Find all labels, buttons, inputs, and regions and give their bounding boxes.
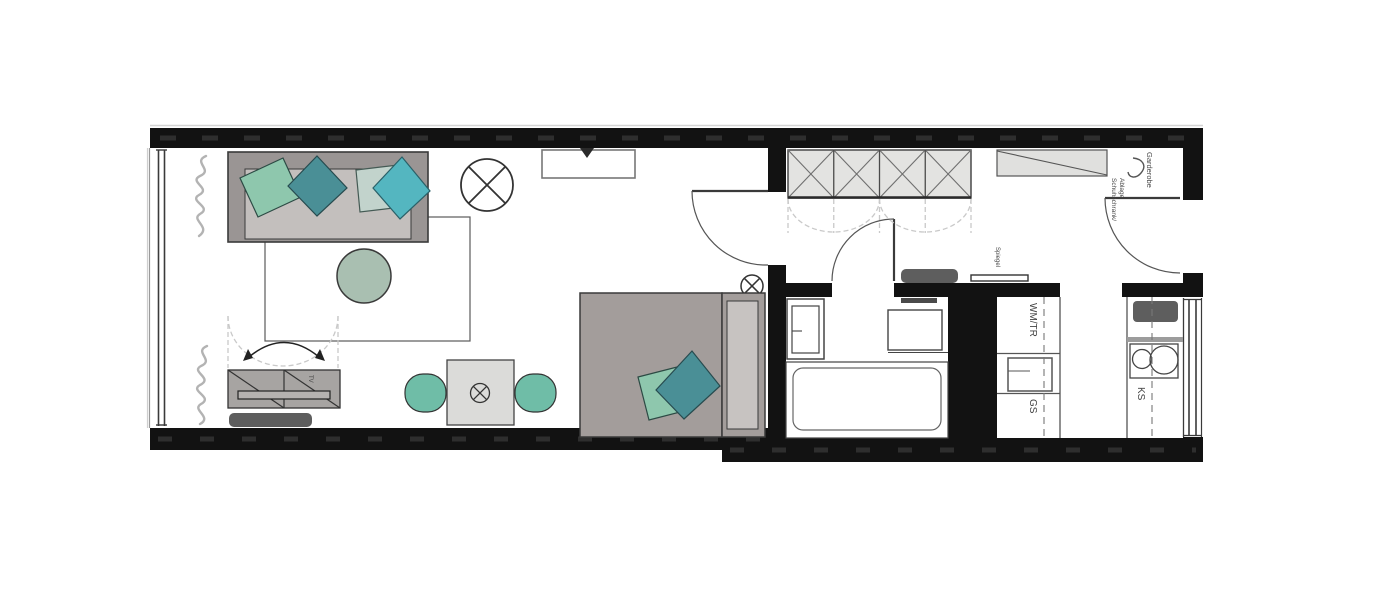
kitchen: WM/TR GS KS bbox=[997, 297, 1183, 438]
shoe-cabinet-shelf bbox=[997, 150, 1107, 176]
bathroom-sink bbox=[888, 310, 948, 353]
door-living bbox=[692, 191, 768, 265]
wall-room-divider-lower bbox=[768, 265, 786, 440]
ks-label: KS bbox=[1135, 387, 1146, 401]
wall-right-sliver bbox=[1183, 273, 1203, 285]
kitchen-right-counter bbox=[1127, 297, 1183, 438]
dining-area bbox=[405, 360, 556, 425]
round-side-table bbox=[337, 249, 391, 303]
wall-right-upper bbox=[1183, 128, 1203, 200]
floor-plan-svg: TV bbox=[0, 0, 1400, 600]
dining-chair-right bbox=[515, 374, 556, 412]
bench-living bbox=[229, 413, 312, 427]
wall-kitchen-top bbox=[1122, 283, 1203, 297]
door-bathroom bbox=[832, 219, 894, 281]
garderobe-label: Garderobe bbox=[1145, 152, 1154, 188]
dining-chair-left bbox=[405, 374, 446, 412]
bed-headboard-panel bbox=[727, 301, 758, 429]
bathroom bbox=[786, 298, 948, 438]
hallway: Schuhschrank/ Ablage Garderobe Spiegel bbox=[788, 150, 1154, 283]
tv-sideboard: TV bbox=[228, 370, 340, 408]
counter-separator bbox=[1127, 337, 1183, 342]
kitchen-sink bbox=[1008, 358, 1052, 391]
bathtub bbox=[786, 362, 948, 438]
window-left bbox=[150, 148, 168, 428]
doors bbox=[692, 191, 1180, 281]
tv-bar bbox=[238, 391, 330, 399]
wall-bathroom-top-left bbox=[786, 283, 832, 297]
coat-hook-icon bbox=[1128, 158, 1144, 177]
hallway-bench bbox=[901, 269, 958, 283]
wall-bottom-right-section bbox=[722, 438, 1203, 462]
floor-plan-page: TV bbox=[0, 0, 1400, 600]
wall-bath-kitchen-divider bbox=[948, 283, 997, 440]
ceiling-light-icon bbox=[461, 159, 513, 211]
curtain-upper bbox=[196, 156, 206, 236]
wardrobe bbox=[788, 150, 971, 198]
tv-label: TV bbox=[307, 375, 313, 383]
bed bbox=[580, 293, 765, 437]
spiegel-label: Spiegel bbox=[994, 247, 1000, 267]
bathroom-radiator bbox=[901, 298, 937, 303]
curtains bbox=[196, 156, 207, 424]
kitchen-appliance-dark bbox=[1133, 301, 1178, 322]
mirror bbox=[971, 275, 1028, 281]
window-kitchen-right bbox=[1184, 298, 1202, 437]
wardrobe-door-swing bbox=[788, 199, 971, 233]
gs-label: GS bbox=[1027, 399, 1038, 414]
shoe-cabinet-label-line2: Ablage bbox=[1118, 178, 1125, 199]
toilet bbox=[787, 299, 824, 359]
wall-shelf bbox=[542, 148, 635, 178]
wall-room-divider-upper bbox=[768, 148, 786, 192]
curtain-lower bbox=[197, 346, 207, 424]
cooktop bbox=[1130, 344, 1178, 378]
wm-tr-label: WM/TR bbox=[1027, 303, 1038, 337]
shoe-cabinet-label-line1: Schuhschrank/ bbox=[1110, 178, 1117, 221]
